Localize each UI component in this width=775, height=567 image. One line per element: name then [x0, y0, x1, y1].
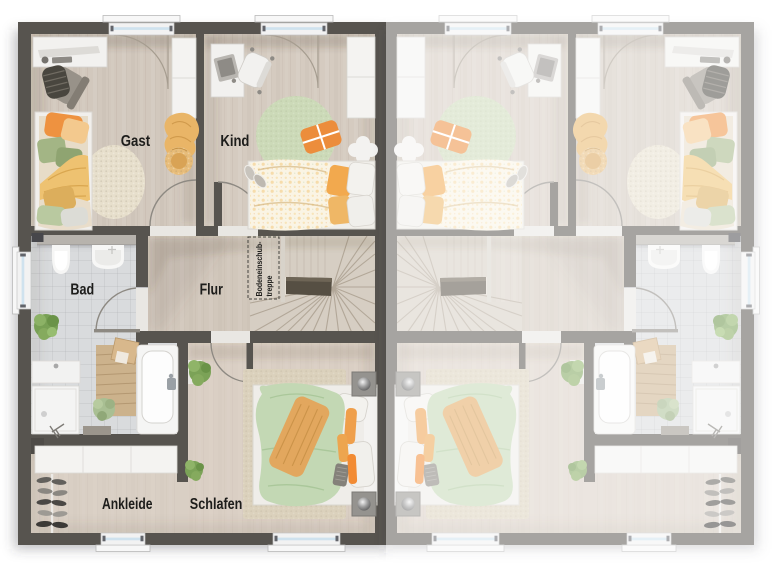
svg-text:Ankleide: Ankleide: [102, 496, 153, 513]
svg-text:Kind: Kind: [220, 133, 249, 150]
svg-text:Gast: Gast: [121, 133, 150, 150]
svg-text:treppe: treppe: [264, 275, 274, 296]
svg-text:Flur: Flur: [200, 282, 223, 299]
svg-text:Bad: Bad: [70, 282, 94, 299]
svg-text:Bodeneinschub-: Bodeneinschub-: [254, 241, 264, 296]
svg-text:Schlafen: Schlafen: [190, 496, 243, 513]
